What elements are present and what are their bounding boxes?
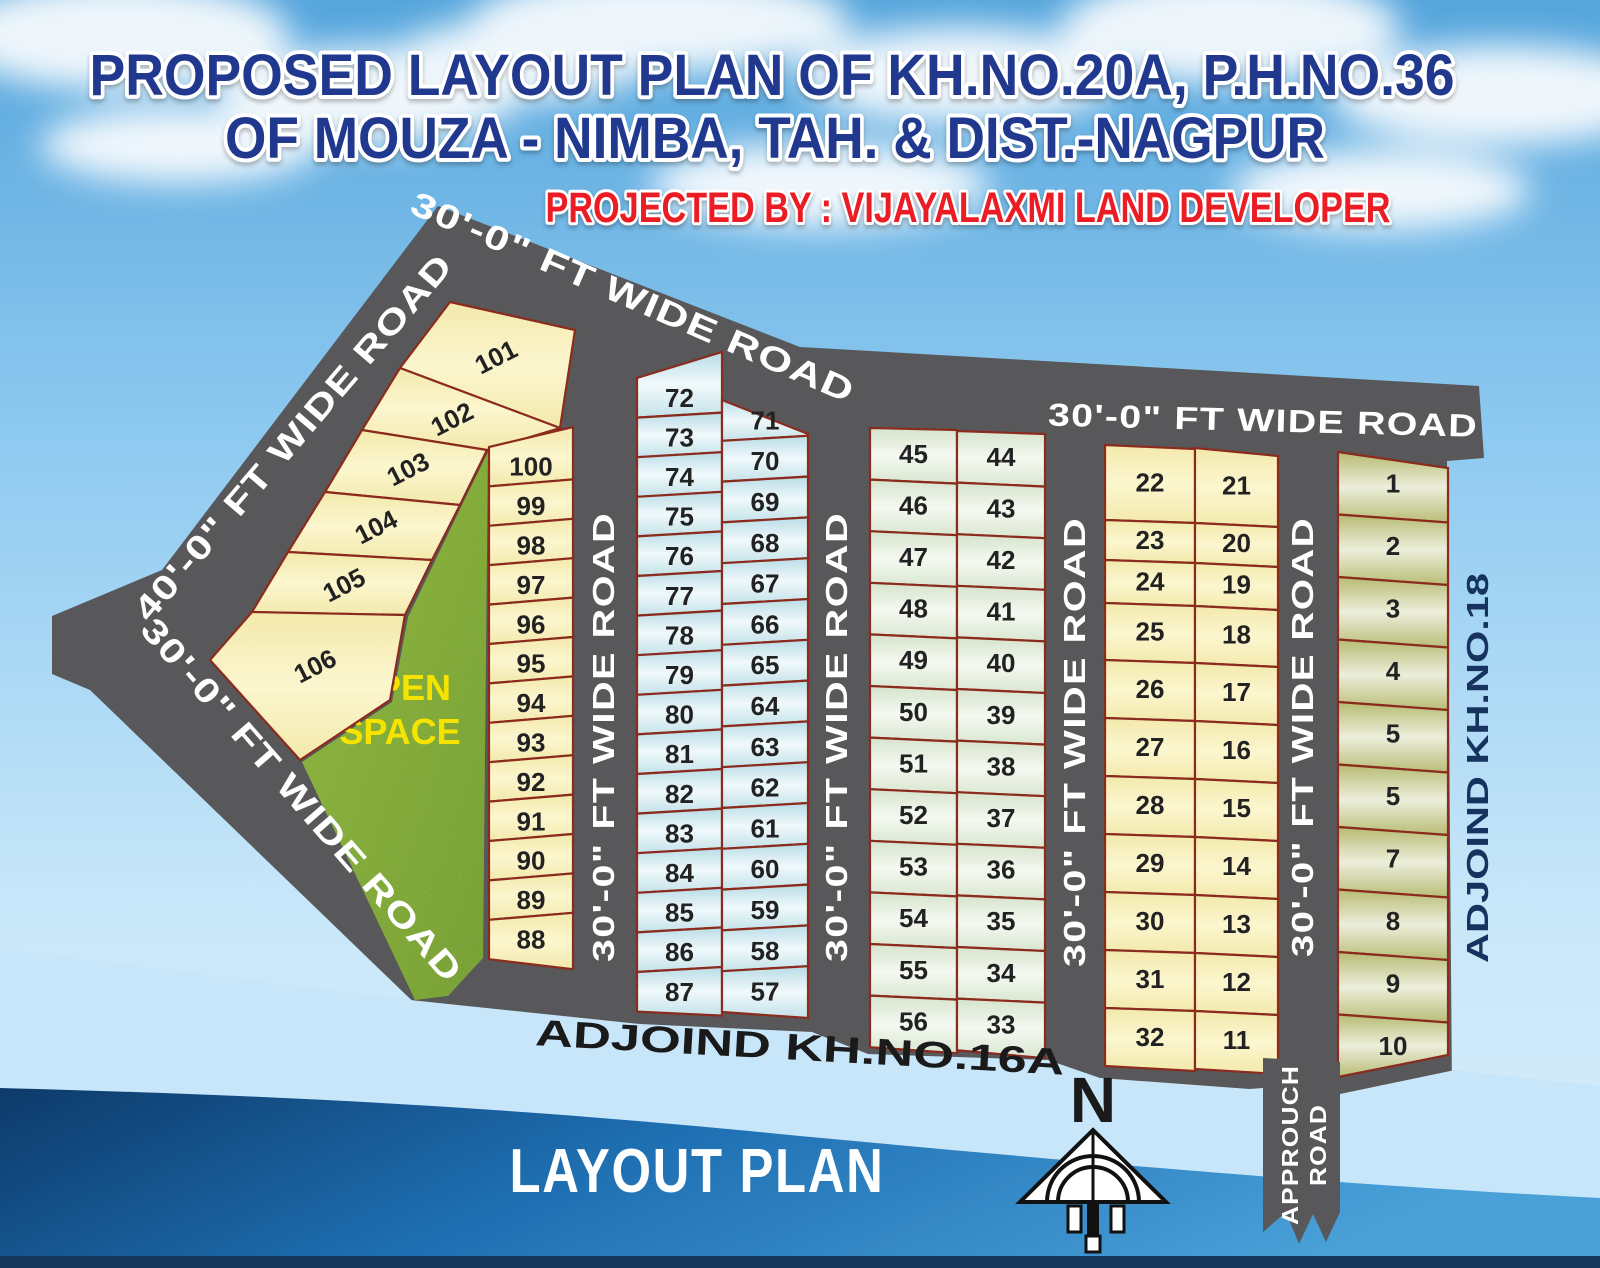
plot-number: 55 [899,955,928,985]
plot-number: 37 [987,803,1016,833]
plot-number: 21 [1222,471,1251,501]
plot-number: 10 [1379,1031,1408,1061]
plot-number: 77 [665,581,694,611]
plot-number: 47 [899,542,928,572]
plot-number: 5 [1386,718,1400,748]
north-letter: N [1070,1064,1116,1136]
plot-number: 44 [987,442,1016,472]
plot-number: 82 [665,779,694,809]
plot-number: 1 [1386,468,1400,498]
plot-number: 36 [987,855,1016,885]
plot-number: 38 [987,751,1016,781]
plot-number: 75 [665,502,694,532]
plot-number: 4 [1386,656,1401,686]
plot-number: 51 [899,748,928,778]
plot-number: 66 [751,609,780,639]
plot-number: 97 [517,570,546,600]
plot-number: 31 [1136,964,1165,994]
layout-plan-poster: OPEN SPACE 101102103104105106 1009998979… [0,0,1600,1268]
plot-number: 54 [899,903,928,933]
plot-number: 11 [1223,1025,1251,1055]
plot-number: 92 [517,767,546,797]
plot-number: 65 [751,650,780,680]
plot-number: 32 [1136,1022,1165,1052]
plot-number: 14 [1222,851,1251,881]
plot-number: 90 [517,846,546,876]
plot-number: 91 [517,806,546,836]
plot-number: 23 [1136,525,1165,555]
plot-number: 78 [665,620,694,650]
plot-number: 80 [665,700,694,730]
plot-number: 33 [987,1009,1016,1039]
plot-number: 74 [665,462,694,492]
plot-number: 98 [517,531,546,561]
plot-number: 72 [665,383,694,413]
projected-by-line: PROJECTED BY : VIJAYALAXMI LAND DEVELOPE… [546,184,1391,232]
plot-number: 53 [899,852,928,882]
plot-number: 22 [1136,468,1165,498]
plot-number: 63 [751,732,780,762]
plot-number: 43 [987,493,1016,523]
plot-number: 45 [899,439,928,469]
plot-number: 95 [517,649,546,679]
plot-number: 39 [987,700,1016,730]
plot-number: 5 [1386,781,1400,811]
plot-number: 94 [517,688,546,718]
approach-road-label-line2: ROAD [1305,1104,1331,1186]
road-label-30ft-v1: 30'-0" FT WIDE ROAD [586,512,621,962]
title-line1: PROPOSED LAYOUT PLAN OF KH.NO.20A, P.H.N… [90,43,1455,108]
plot-number: 68 [751,528,780,558]
plot-number: 52 [899,800,928,830]
plot-number: 42 [987,545,1016,575]
approach-road: APPROUCH ROAD [1263,1058,1340,1244]
plot-number: 86 [665,937,694,967]
plot-number: 73 [665,422,694,452]
plot-number: 81 [665,739,694,769]
plot-number: 99 [517,491,546,521]
plot-number: 16 [1222,735,1251,765]
plot-number: 93 [517,728,546,758]
plot-number: 26 [1136,674,1165,704]
plot-number: 62 [751,773,780,803]
plot-number: 84 [665,858,694,888]
plot-number: 27 [1136,732,1165,762]
adjoining-label-right: ADJOIND KH.NO.18 [1460,573,1495,963]
plot-number: 25 [1136,617,1165,647]
plot-number: 96 [517,609,546,639]
approach-road-label-line1: APPROUCH [1277,1065,1303,1225]
plot-number: 2 [1386,531,1400,561]
plot-number: 64 [751,691,780,721]
plot-number: 88 [517,925,546,955]
road-label-30ft-v2: 30'-0" FT WIDE ROAD [819,512,854,962]
plot-number: 67 [751,569,780,599]
plot-number: 57 [751,977,780,1007]
plot-number: 35 [987,906,1016,936]
plot-number: 60 [751,854,780,884]
road-label-30ft-v3: 30'-0" FT WIDE ROAD [1057,517,1092,967]
plot-number: 69 [751,487,780,517]
plot-number: 50 [899,697,928,727]
plot-number: 3 [1386,593,1400,623]
plot-number: 46 [899,490,928,520]
layout-plan-svg: OPEN SPACE 101102103104105106 1009998979… [0,0,1600,1268]
plot-number: 70 [751,446,780,476]
plot-number: 83 [665,818,694,848]
plot-number: 9 [1386,968,1400,998]
plot-number: 19 [1222,570,1251,600]
plot-number: 34 [987,958,1016,988]
plot-number: 76 [665,541,694,571]
plot-number: 40 [987,648,1016,678]
bottom-strip [0,1256,1600,1268]
plot-number: 17 [1222,677,1251,707]
plot-number: 30 [1136,906,1165,936]
road-label-30ft-v4: 30'-0" FT WIDE ROAD [1285,517,1320,957]
plot-number: 7 [1386,843,1400,873]
plot-number: 59 [751,895,780,925]
plot-number: 85 [665,898,694,928]
title-line2: OF MOUZA - NIMBA, TAH. & DIST.-NAGPUR [225,106,1325,171]
caption-layout-plan: LAYOUT PLAN [510,1137,885,1206]
plot-number: 100 [509,452,552,482]
plot-number: 49 [899,645,928,675]
plot-number: 8 [1386,906,1400,936]
plot-number: 89 [517,885,546,915]
plot-number: 48 [899,594,928,624]
plot-number: 79 [665,660,694,690]
plot-number: 87 [665,977,694,1007]
plot-number: 58 [751,936,780,966]
plot-number: 28 [1136,790,1165,820]
plot-number: 41 [987,597,1016,627]
plot-number: 24 [1136,567,1165,597]
plot-number: 61 [751,813,780,843]
plot-number: 71 [751,405,780,435]
plot-number: 20 [1222,528,1251,558]
plot-number: 29 [1136,848,1165,878]
plot-number: 15 [1222,793,1251,823]
plot-number: 13 [1222,909,1251,939]
plot-number: 18 [1222,620,1251,650]
plot-number: 12 [1222,967,1251,997]
